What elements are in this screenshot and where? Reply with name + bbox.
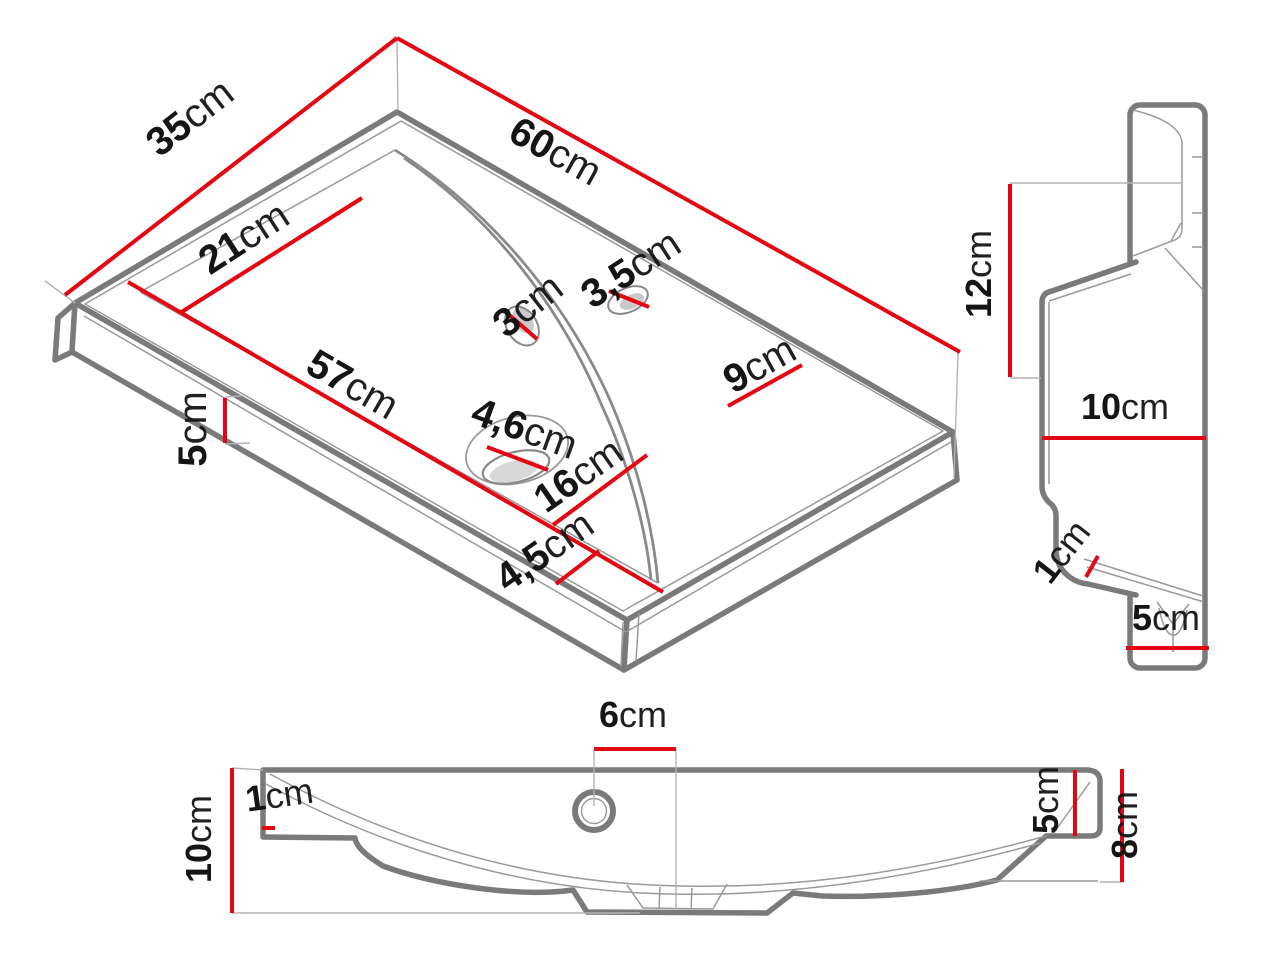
front-outline [263, 770, 1100, 913]
dim-label-5cm-side: 5cm [1132, 597, 1200, 638]
dim-label-10cm-front: 10cm [178, 795, 219, 883]
washbasin-drawing: 35cm 60cm 21cm 57cm 5cm 3cm 3,5cm 9cm 4,… [0, 0, 1280, 960]
dim-label-10cm-side: 10cm [1081, 386, 1169, 427]
isometric-top-view: 35cm 60cm 21cm 57cm 5cm 3cm 3,5cm 9cm 4,… [45, 38, 960, 670]
dim-label-5cm-front: 5cm [1025, 766, 1066, 834]
dim-label-6cm: 6cm [599, 694, 667, 735]
dim-label-12cm: 12cm [958, 230, 999, 318]
side-profile-view: 12cm 10cm 1cm 5cm [958, 105, 1209, 668]
dim-label-8cm: 8cm [1104, 791, 1145, 859]
dim-label-5cm-height: 5cm [171, 391, 215, 467]
dim-label-35cm: 35cm [138, 70, 242, 165]
technical-drawing-page: 35cm 60cm 21cm 57cm 5cm 3cm 3,5cm 9cm 4,… [0, 0, 1280, 960]
front-elevation-view: 10cm 1cm 6cm 5cm 8cm [178, 694, 1145, 913]
